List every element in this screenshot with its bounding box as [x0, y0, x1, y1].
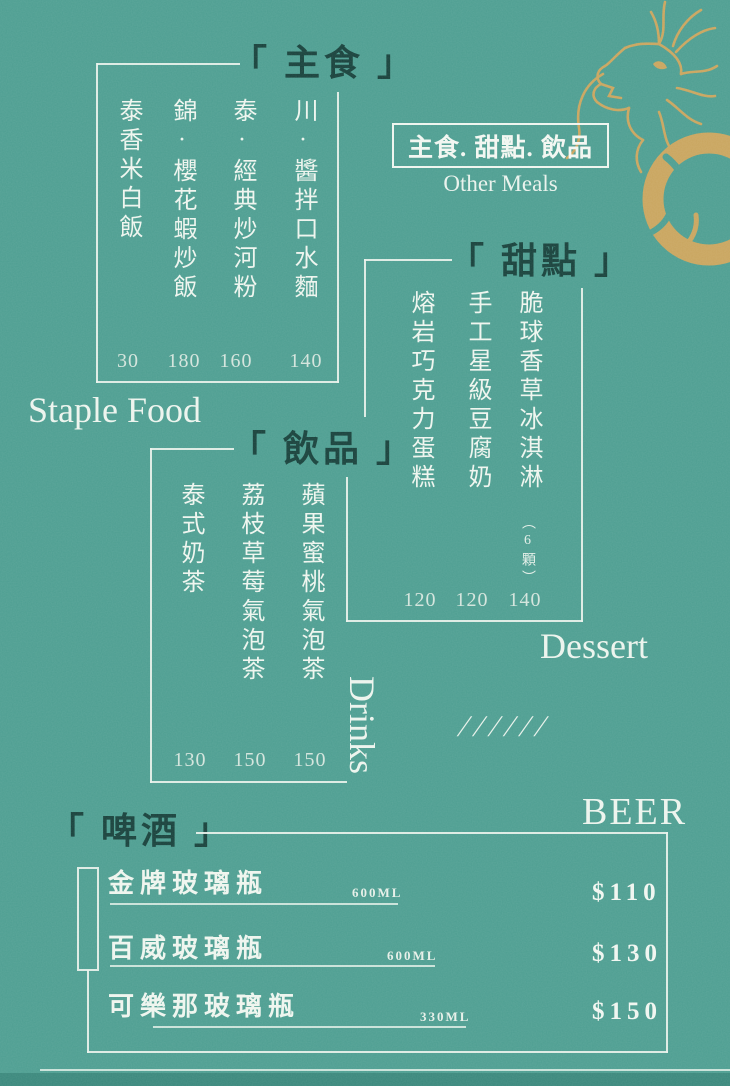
footer-separator-line [40, 1069, 730, 1071]
drinks-item-price: 150 [222, 750, 278, 770]
header-title: 主食. 甜點. 飲品 [408, 128, 593, 164]
staple-section-title: 「 主食 」 [231, 44, 417, 84]
dessert-box-bottom-line [346, 620, 583, 622]
drinks-item-name: 泰式奶茶 [178, 482, 202, 598]
paper-texture-overlay [0, 0, 730, 1086]
drinks-item-name: 蘋果蜜桃氣泡茶 [298, 482, 322, 685]
beer-item-underline [153, 1026, 466, 1028]
beer-item-size: 600ML [352, 886, 402, 899]
dessert-box-right-line [581, 288, 583, 622]
dessert-section-title: 「 甜點 」 [448, 242, 634, 282]
drinks-box-top-line [150, 448, 234, 450]
staple-item-name: 錦·櫻花蝦炒飯 [170, 98, 194, 303]
staple-item-name: 泰·經典炒河粉 [230, 98, 254, 303]
beer-item-size: 330ML [420, 1010, 470, 1023]
beer-left-line [87, 970, 89, 1053]
staple-box-left-line [96, 63, 98, 383]
header-box: 主食. 甜點. 飲品 [392, 123, 609, 168]
beer-item-name: 可樂那玻璃瓶 [108, 994, 300, 1020]
dessert-item-price: 140 [497, 590, 553, 610]
dessert-english-label: Dessert [540, 628, 648, 664]
drinks-item-price: 130 [162, 750, 218, 770]
staple-item-price: 180 [156, 351, 212, 371]
beer-decor-rect [77, 867, 99, 971]
dessert-item-name: 手工星級豆腐奶 [465, 290, 489, 493]
dessert-item-price: 120 [444, 590, 500, 610]
dessert-item-name: 脆球香草冰淇淋 [516, 290, 540, 493]
beer-item-underline [110, 903, 398, 905]
beer-item-size: 600ML [387, 949, 437, 962]
beer-item-underline [110, 965, 435, 967]
staple-item-price: 140 [278, 351, 334, 371]
staple-item-name: 泰香米白飯 [116, 98, 140, 243]
staple-box-right-line [337, 92, 339, 383]
decor-slashes: ////// [455, 712, 558, 742]
staple-box-top-line [97, 63, 240, 65]
staple-item-price: 160 [208, 351, 264, 371]
beer-bottom-line [87, 1051, 668, 1053]
beer-right-line [666, 832, 668, 1053]
drinks-box-right-line [346, 477, 348, 622]
menu-page: 「 主食 」 泰香米白飯 錦·櫻花蝦炒飯 泰·經典炒河粉 川·醬拌口水麵 30 … [0, 0, 730, 1086]
beer-item-price: $130 [592, 941, 662, 966]
header-subtitle: Other Meals [392, 172, 609, 195]
staple-item-price: 30 [100, 351, 156, 371]
staple-item-name: 川·醬拌口水麵 [291, 98, 315, 303]
beer-english-label: BEER [582, 793, 687, 831]
dessert-item-price: 120 [392, 590, 448, 610]
drinks-section-title: 「 飲品 」 [230, 430, 416, 470]
drinks-item-price: 150 [282, 750, 338, 770]
dessert-box-left-line [364, 259, 366, 417]
drinks-item-name: 荔枝草莓氣泡茶 [238, 482, 262, 685]
beer-item-name: 百威玻璃瓶 [108, 936, 268, 962]
dessert-box-top-line [364, 259, 452, 261]
gold-ring-icon [628, 125, 730, 275]
drinks-english-label: Drinks [344, 676, 380, 774]
drinks-box-left-line [150, 448, 152, 783]
beer-item-price: $150 [592, 999, 662, 1024]
beer-item-price: $110 [592, 880, 661, 905]
footer-dark-band [0, 1073, 730, 1086]
beer-item-name: 金牌玻璃瓶 [108, 871, 268, 897]
staple-english-label: Staple Food [28, 392, 201, 428]
drinks-box-bottom-line [150, 781, 347, 783]
dessert-item-note: （6顆） [520, 515, 534, 588]
staple-box-bottom-line [96, 381, 339, 383]
